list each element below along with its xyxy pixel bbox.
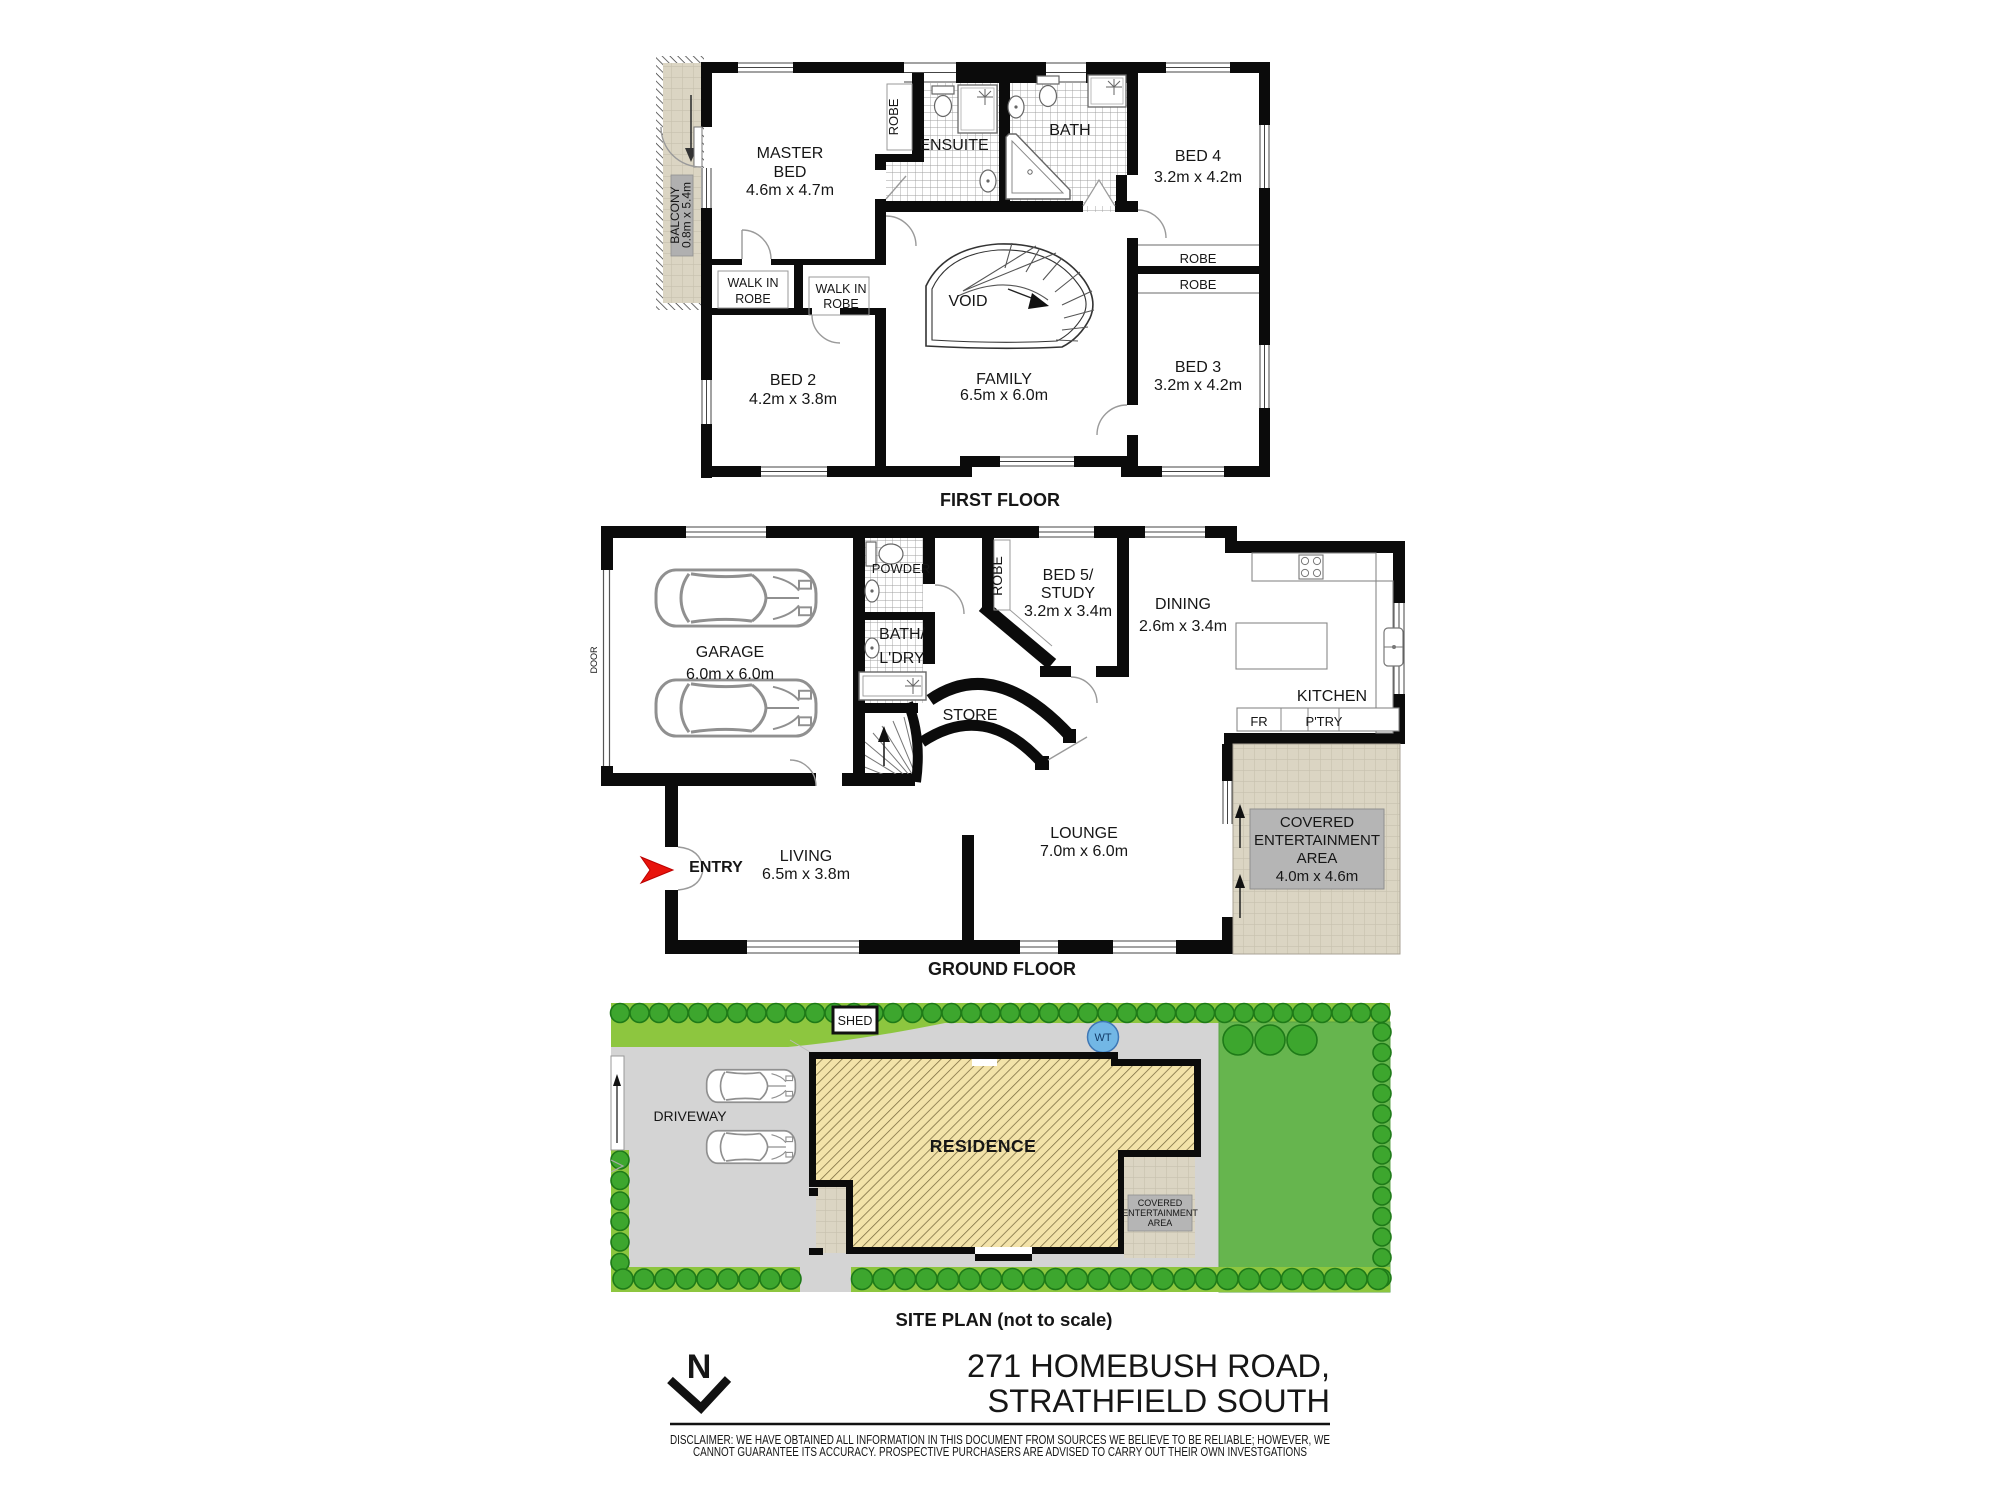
svg-text:STORE: STORE	[943, 707, 998, 724]
svg-text:BED 2: BED 2	[770, 372, 816, 389]
svg-text:COVERED: COVERED	[1138, 1198, 1183, 1208]
svg-text:DINING: DINING	[1155, 596, 1211, 613]
svg-text:SITE PLAN (not to scale): SITE PLAN (not to scale)	[896, 1309, 1113, 1330]
svg-text:BATH/: BATH/	[879, 626, 925, 643]
svg-text:LOUNGE: LOUNGE	[1050, 825, 1118, 842]
svg-text:KITCHEN: KITCHEN	[1297, 688, 1367, 705]
svg-text:3.2m x 4.2m: 3.2m x 4.2m	[1154, 169, 1242, 186]
svg-text:BED: BED	[774, 164, 807, 181]
svg-text:WALK IN: WALK IN	[816, 282, 867, 296]
svg-text:N: N	[687, 1348, 712, 1386]
svg-text:FAMILY: FAMILY	[976, 371, 1032, 388]
svg-text:BED 3: BED 3	[1175, 359, 1221, 376]
svg-text:4.0m x 4.6m: 4.0m x 4.6m	[1276, 868, 1359, 885]
svg-text:3.2m x 4.2m: 3.2m x 4.2m	[1154, 377, 1242, 394]
svg-text:RESIDENCE: RESIDENCE	[930, 1136, 1037, 1156]
svg-text:MASTER: MASTER	[757, 145, 824, 162]
svg-text:STRATHFIELD SOUTH: STRATHFIELD SOUTH	[988, 1383, 1330, 1419]
svg-text:BED 5/: BED 5/	[1043, 567, 1094, 584]
svg-text:WT: WT	[1094, 1032, 1111, 1044]
svg-text:VOID: VOID	[948, 293, 987, 310]
svg-text:6.0m x 6.0m: 6.0m x 6.0m	[686, 666, 774, 683]
svg-text:6.5m x 3.8m: 6.5m x 3.8m	[762, 866, 850, 883]
svg-text:WALK IN: WALK IN	[728, 276, 779, 290]
svg-text:COVERED: COVERED	[1280, 814, 1354, 831]
svg-text:ROBE: ROBE	[1180, 251, 1217, 266]
svg-text:SHED: SHED	[838, 1014, 873, 1028]
svg-text:ENTRY: ENTRY	[689, 859, 743, 876]
svg-text:ROBE: ROBE	[1180, 277, 1217, 292]
svg-text:ENTERTAINMENT: ENTERTAINMENT	[1254, 832, 1380, 849]
svg-text:ROBE: ROBE	[989, 556, 1005, 596]
svg-text:4.2m x 3.8m: 4.2m x 3.8m	[749, 391, 837, 408]
svg-text:BATH: BATH	[1049, 122, 1090, 139]
svg-text:DOOR: DOOR	[589, 646, 599, 674]
svg-text:AREA: AREA	[1297, 850, 1338, 867]
svg-text:DRIVEWAY: DRIVEWAY	[653, 1108, 727, 1124]
svg-text:BED 4: BED 4	[1175, 148, 1221, 165]
svg-text:271 HOMEBUSH ROAD,: 271 HOMEBUSH ROAD,	[967, 1348, 1330, 1384]
svg-text:CANNOT GUARANTEE ITS ACCURACY.: CANNOT GUARANTEE ITS ACCURACY. PROSPECTI…	[693, 1445, 1307, 1459]
svg-text:GARAGE: GARAGE	[696, 644, 764, 661]
svg-text:3.2m x 3.4m: 3.2m x 3.4m	[1024, 603, 1112, 620]
svg-text:P'TRY: P'TRY	[1306, 714, 1343, 729]
svg-text:4.6m x 4.7m: 4.6m x 4.7m	[746, 182, 834, 199]
svg-text:ROBE: ROBE	[823, 297, 858, 311]
svg-text:0.8m x 5.4m: 0.8m x 5.4m	[680, 182, 694, 248]
svg-text:AREA: AREA	[1148, 1218, 1173, 1228]
svg-text:2.6m x 3.4m: 2.6m x 3.4m	[1139, 618, 1227, 635]
svg-text:FIRST FLOOR: FIRST FLOOR	[940, 490, 1060, 510]
svg-text:6.5m x 6.0m: 6.5m x 6.0m	[960, 387, 1048, 404]
svg-text:FR: FR	[1250, 714, 1267, 729]
svg-text:ROBE: ROBE	[735, 292, 770, 306]
svg-text:GROUND FLOOR: GROUND FLOOR	[928, 959, 1076, 979]
svg-text:ENTERTAINMENT: ENTERTAINMENT	[1122, 1208, 1198, 1218]
svg-text:LIVING: LIVING	[780, 848, 832, 865]
svg-text:ROBE: ROBE	[886, 98, 901, 135]
svg-text:ENSUITE: ENSUITE	[919, 137, 988, 154]
svg-text:STUDY: STUDY	[1041, 585, 1096, 602]
svg-text:POWDER: POWDER	[872, 561, 931, 576]
svg-text:7.0m x 6.0m: 7.0m x 6.0m	[1040, 843, 1128, 860]
svg-text:L'DRY: L'DRY	[879, 650, 925, 667]
